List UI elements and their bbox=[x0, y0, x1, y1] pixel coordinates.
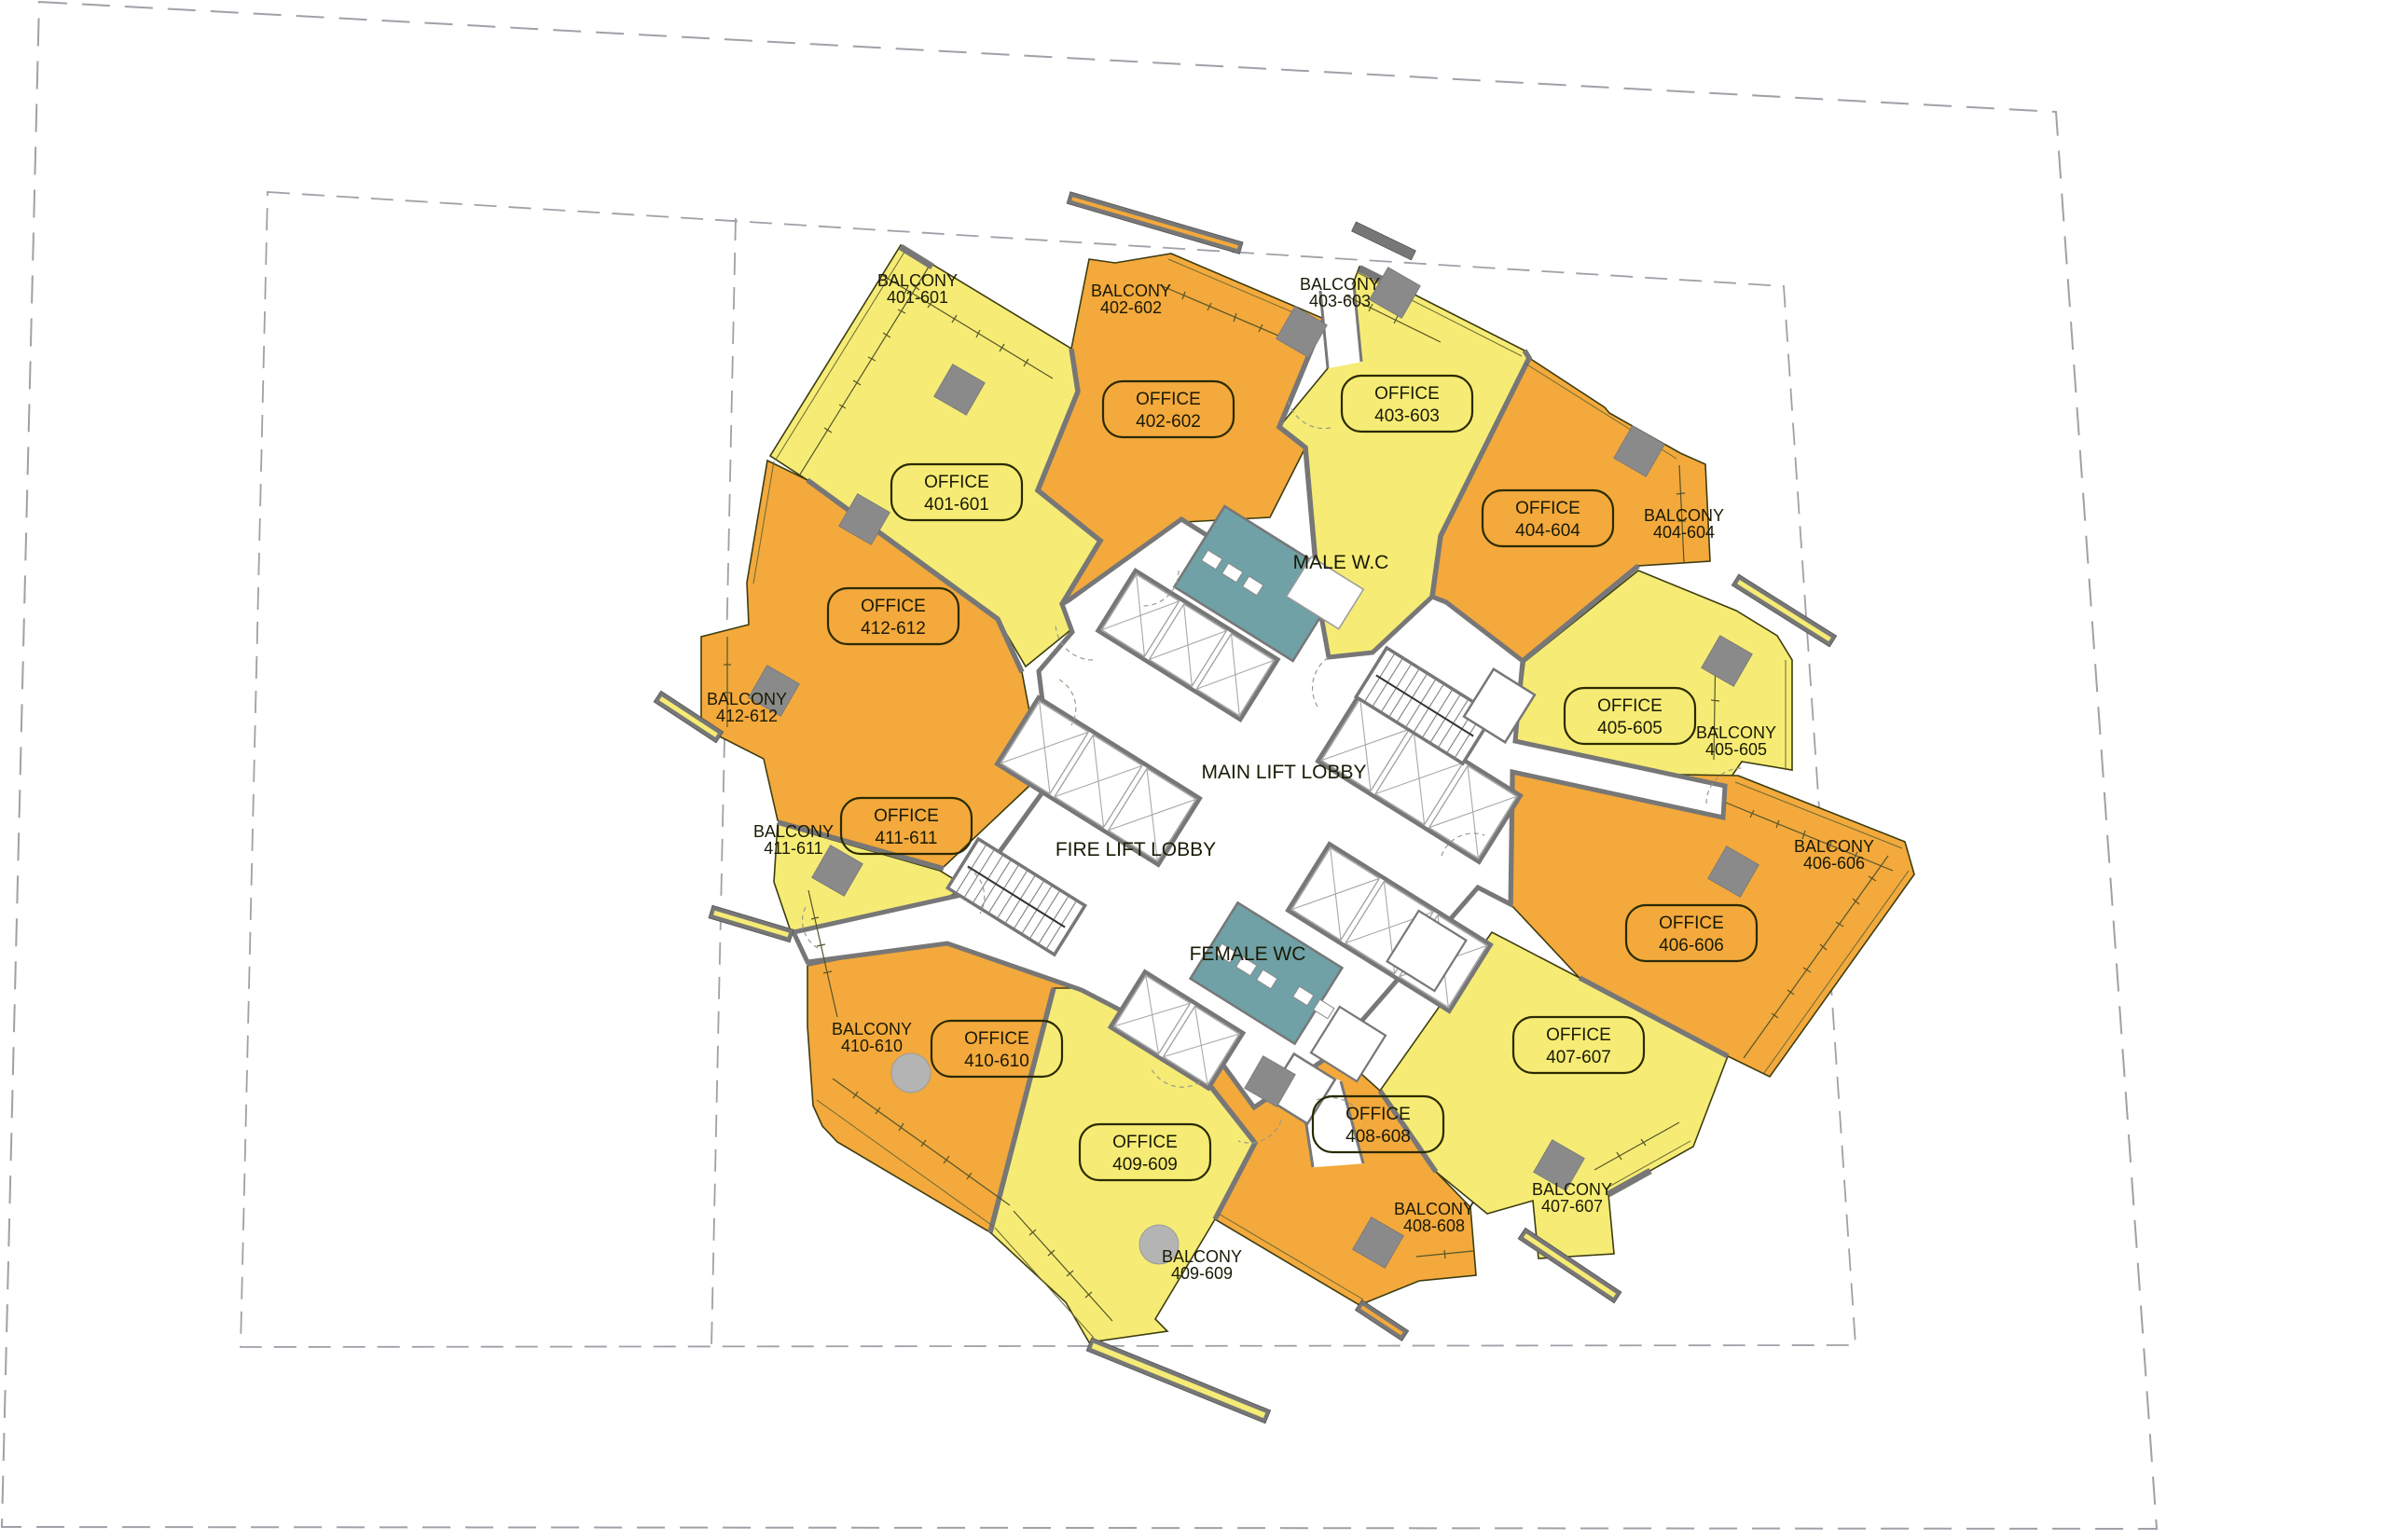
svg-text:410-610: 410-610 bbox=[841, 1037, 903, 1055]
svg-text:BALCONY: BALCONY bbox=[1644, 506, 1724, 525]
svg-text:405-605: 405-605 bbox=[1705, 740, 1767, 759]
svg-text:OFFICE: OFFICE bbox=[861, 597, 926, 616]
svg-text:MALE W.C: MALE W.C bbox=[1293, 552, 1389, 573]
svg-text:407-607: 407-607 bbox=[1546, 1048, 1611, 1067]
svg-text:OFFICE: OFFICE bbox=[874, 806, 939, 826]
svg-text:406-606: 406-606 bbox=[1803, 854, 1865, 873]
svg-text:BALCONY: BALCONY bbox=[1300, 275, 1380, 294]
svg-text:410-610: 410-610 bbox=[964, 1052, 1029, 1071]
svg-text:BALCONY: BALCONY bbox=[707, 690, 787, 708]
svg-text:412-612: 412-612 bbox=[716, 707, 778, 725]
svg-text:404-604: 404-604 bbox=[1515, 521, 1580, 541]
svg-text:BALCONY: BALCONY bbox=[1532, 1180, 1612, 1199]
svg-text:OFFICE: OFFICE bbox=[1597, 696, 1663, 716]
svg-text:OFFICE: OFFICE bbox=[1515, 499, 1580, 518]
svg-text:OFFICE: OFFICE bbox=[1136, 390, 1201, 409]
svg-text:404-604: 404-604 bbox=[1653, 523, 1715, 542]
svg-text:OFFICE: OFFICE bbox=[964, 1029, 1029, 1049]
svg-text:BALCONY: BALCONY bbox=[1794, 837, 1874, 856]
svg-text:BALCONY: BALCONY bbox=[1162, 1247, 1242, 1266]
svg-text:408-608: 408-608 bbox=[1345, 1127, 1411, 1147]
svg-text:409-609: 409-609 bbox=[1112, 1155, 1178, 1175]
svg-text:OFFICE: OFFICE bbox=[1112, 1133, 1178, 1152]
svg-text:407-607: 407-607 bbox=[1541, 1197, 1603, 1216]
svg-text:411-611: 411-611 bbox=[876, 829, 938, 848]
svg-text:OFFICE: OFFICE bbox=[924, 473, 989, 492]
svg-text:BALCONY: BALCONY bbox=[753, 822, 834, 841]
svg-text:BALCONY: BALCONY bbox=[1696, 723, 1776, 742]
svg-text:402-602: 402-602 bbox=[1136, 412, 1201, 432]
svg-text:BALCONY: BALCONY bbox=[1091, 282, 1171, 300]
svg-text:OFFICE: OFFICE bbox=[1546, 1025, 1611, 1045]
svg-text:403-603: 403-603 bbox=[1309, 292, 1371, 310]
svg-text:FIRE LIFT LOBBY: FIRE LIFT LOBBY bbox=[1056, 839, 1216, 860]
svg-text:401-601: 401-601 bbox=[924, 495, 989, 515]
svg-text:408-608: 408-608 bbox=[1403, 1217, 1465, 1235]
svg-text:406-606: 406-606 bbox=[1659, 936, 1724, 956]
svg-text:OFFICE: OFFICE bbox=[1374, 384, 1440, 404]
svg-text:BALCONY: BALCONY bbox=[832, 1020, 912, 1038]
svg-text:402-602: 402-602 bbox=[1100, 298, 1162, 317]
svg-text:405-605: 405-605 bbox=[1597, 719, 1663, 738]
svg-text:MAIN LIFT LOBBY: MAIN LIFT LOBBY bbox=[1202, 762, 1367, 783]
svg-text:BALCONY: BALCONY bbox=[1394, 1200, 1474, 1218]
svg-text:401-601: 401-601 bbox=[887, 288, 948, 307]
svg-text:OFFICE: OFFICE bbox=[1345, 1105, 1411, 1124]
svg-text:403-603: 403-603 bbox=[1374, 406, 1440, 426]
svg-text:409-609: 409-609 bbox=[1171, 1264, 1233, 1283]
svg-text:BALCONY: BALCONY bbox=[877, 271, 958, 290]
svg-text:411-611: 411-611 bbox=[764, 839, 822, 858]
svg-text:412-612: 412-612 bbox=[861, 619, 926, 639]
svg-text:OFFICE: OFFICE bbox=[1659, 914, 1724, 933]
svg-text:FEMALE WC: FEMALE WC bbox=[1190, 943, 1306, 965]
